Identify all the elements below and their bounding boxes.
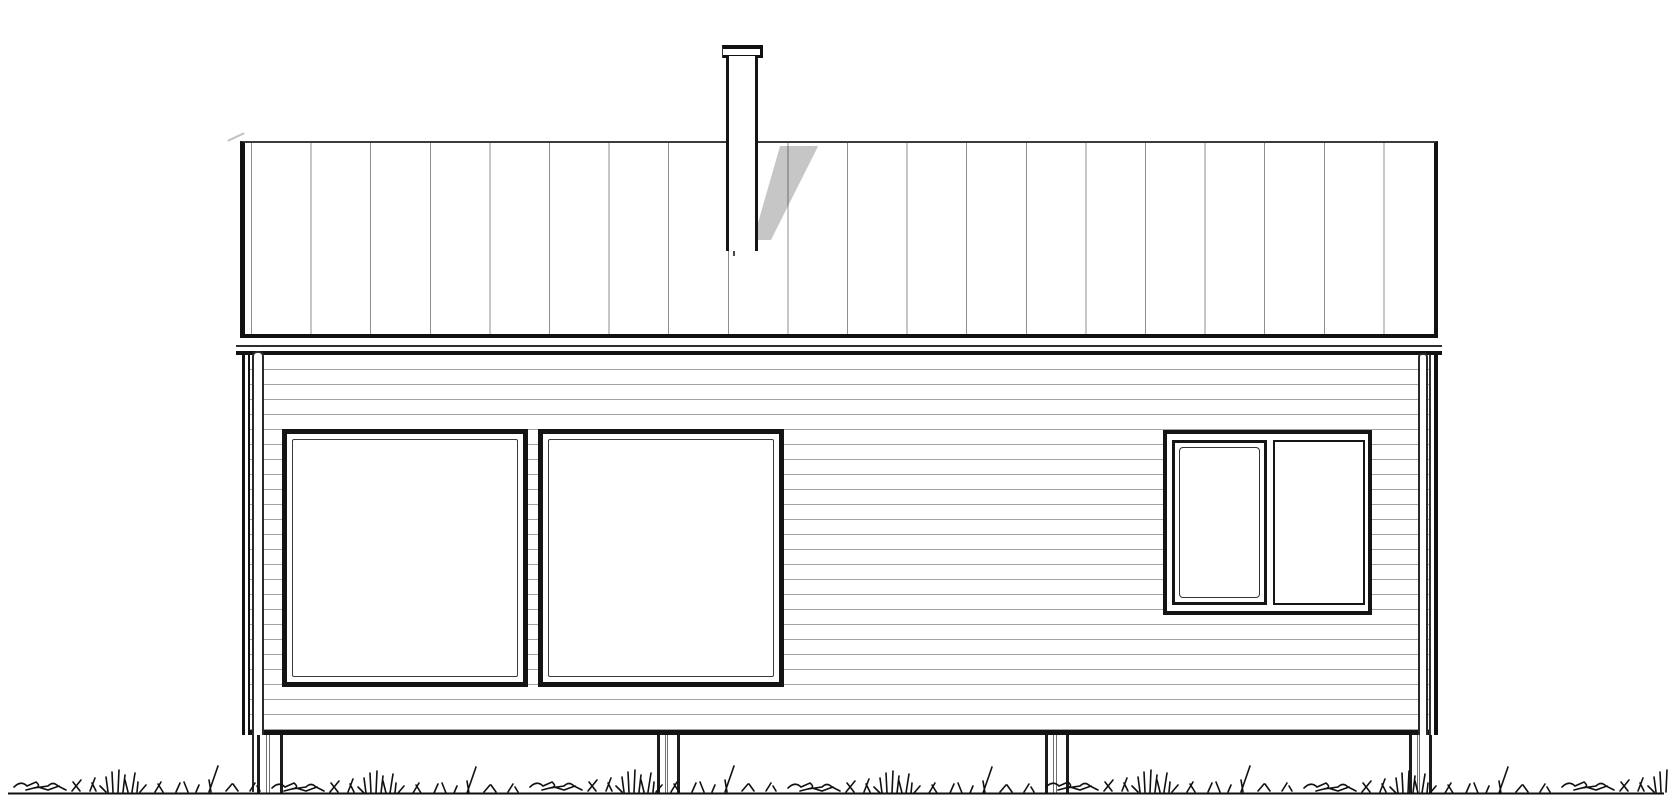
window-pane-fixed: [1273, 440, 1365, 605]
grass-ground-line: [0, 754, 1670, 800]
window-large-left: [282, 429, 528, 687]
downspout-left: [252, 351, 264, 792]
window-pane-casement: [1172, 440, 1267, 605]
corner-board-left: [242, 355, 250, 735]
downspout-right: [1418, 353, 1428, 792]
roof-standing-seam: [240, 141, 1438, 338]
fascia-trim-upper-line: [236, 345, 1442, 347]
elevation-drawing: [0, 0, 1670, 800]
window-large-center: [538, 429, 784, 687]
chimney-base-mark: [733, 251, 735, 256]
corner-board-right: [1429, 355, 1438, 735]
window-right-double: [1163, 430, 1372, 615]
chimney-flue: [726, 56, 758, 251]
